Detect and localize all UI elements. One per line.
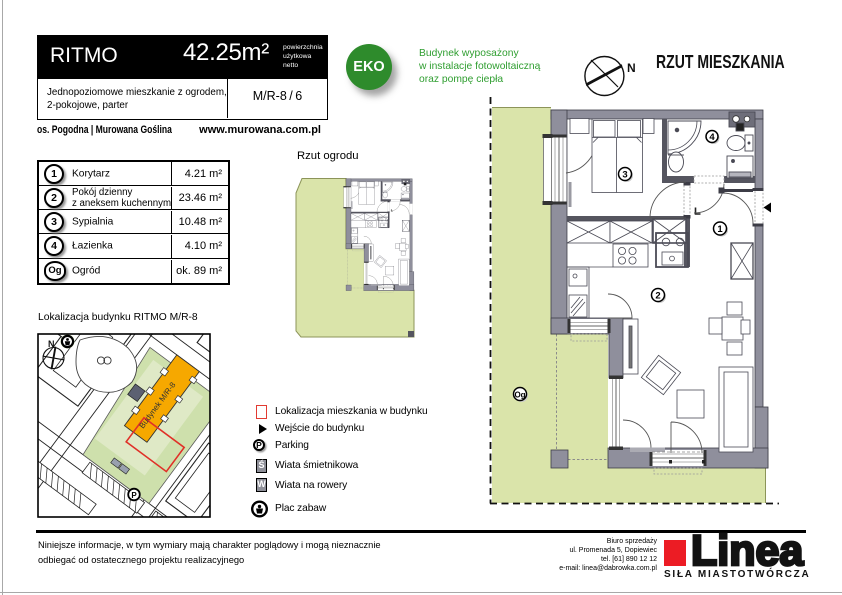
svg-text:P: P — [131, 491, 137, 500]
svg-text:3: 3 — [622, 170, 627, 181]
svg-text:N: N — [48, 339, 55, 349]
svg-text:Og: Og — [514, 391, 525, 400]
svg-text:1: 1 — [717, 224, 723, 235]
svg-text:4: 4 — [709, 132, 715, 143]
svg-text:2: 2 — [655, 291, 660, 302]
